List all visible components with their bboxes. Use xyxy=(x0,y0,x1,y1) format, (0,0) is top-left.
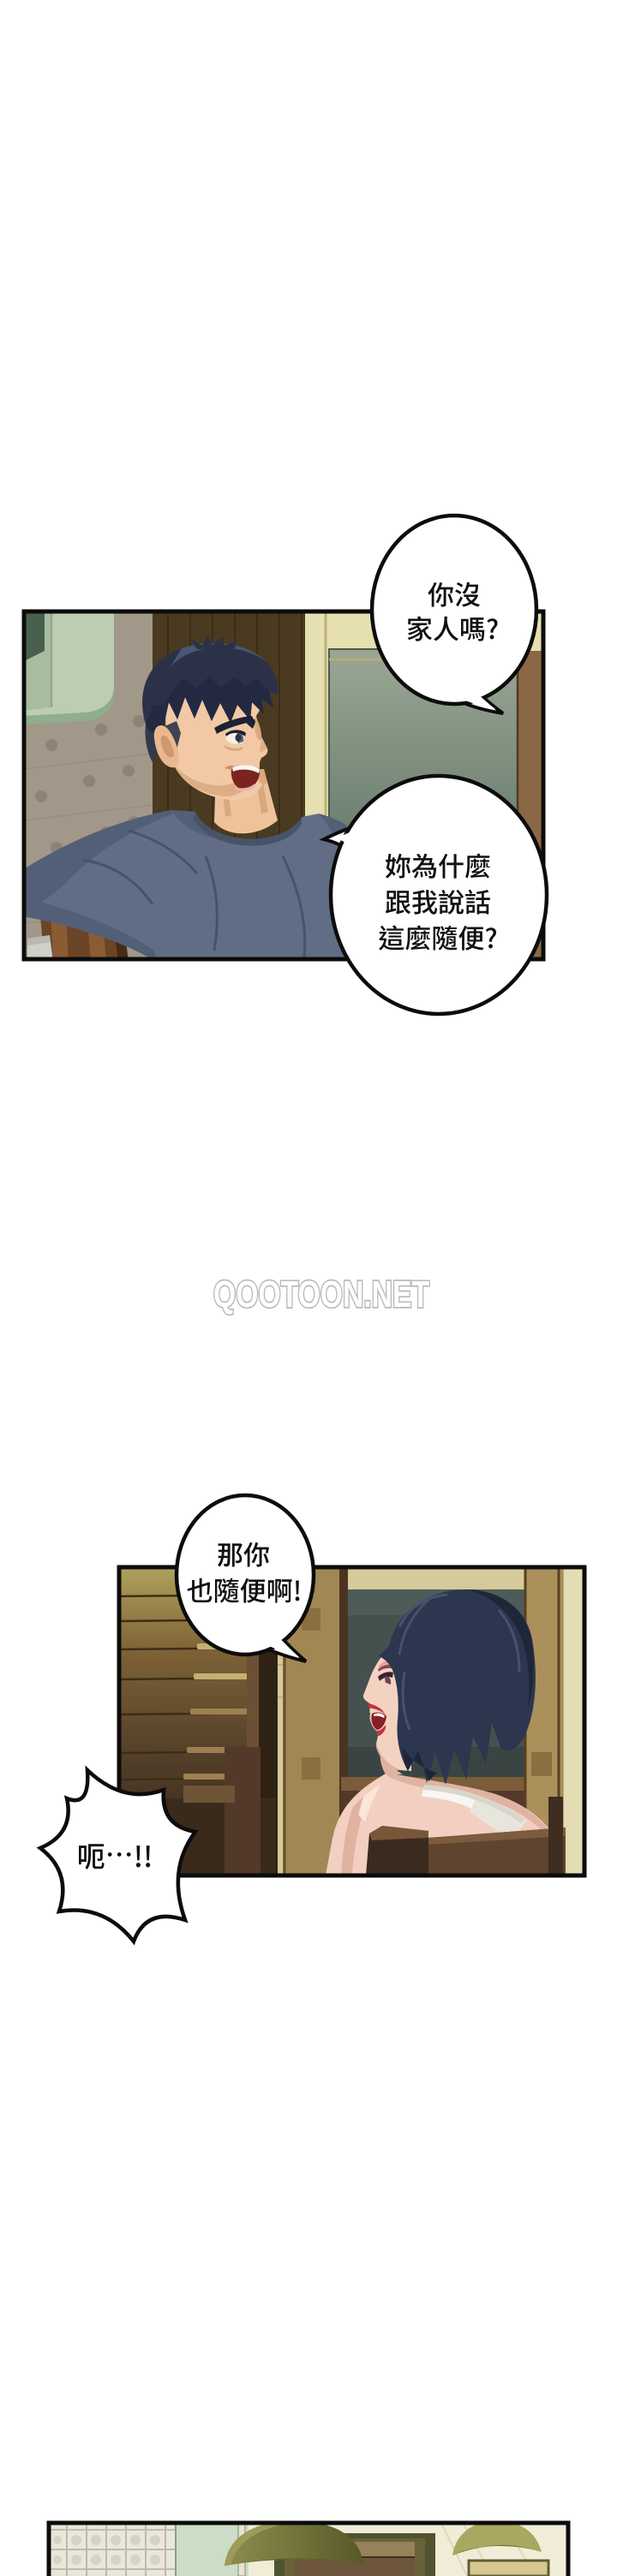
svg-text:QOOTOON.NET: QOOTOON.NET xyxy=(213,1273,429,1315)
